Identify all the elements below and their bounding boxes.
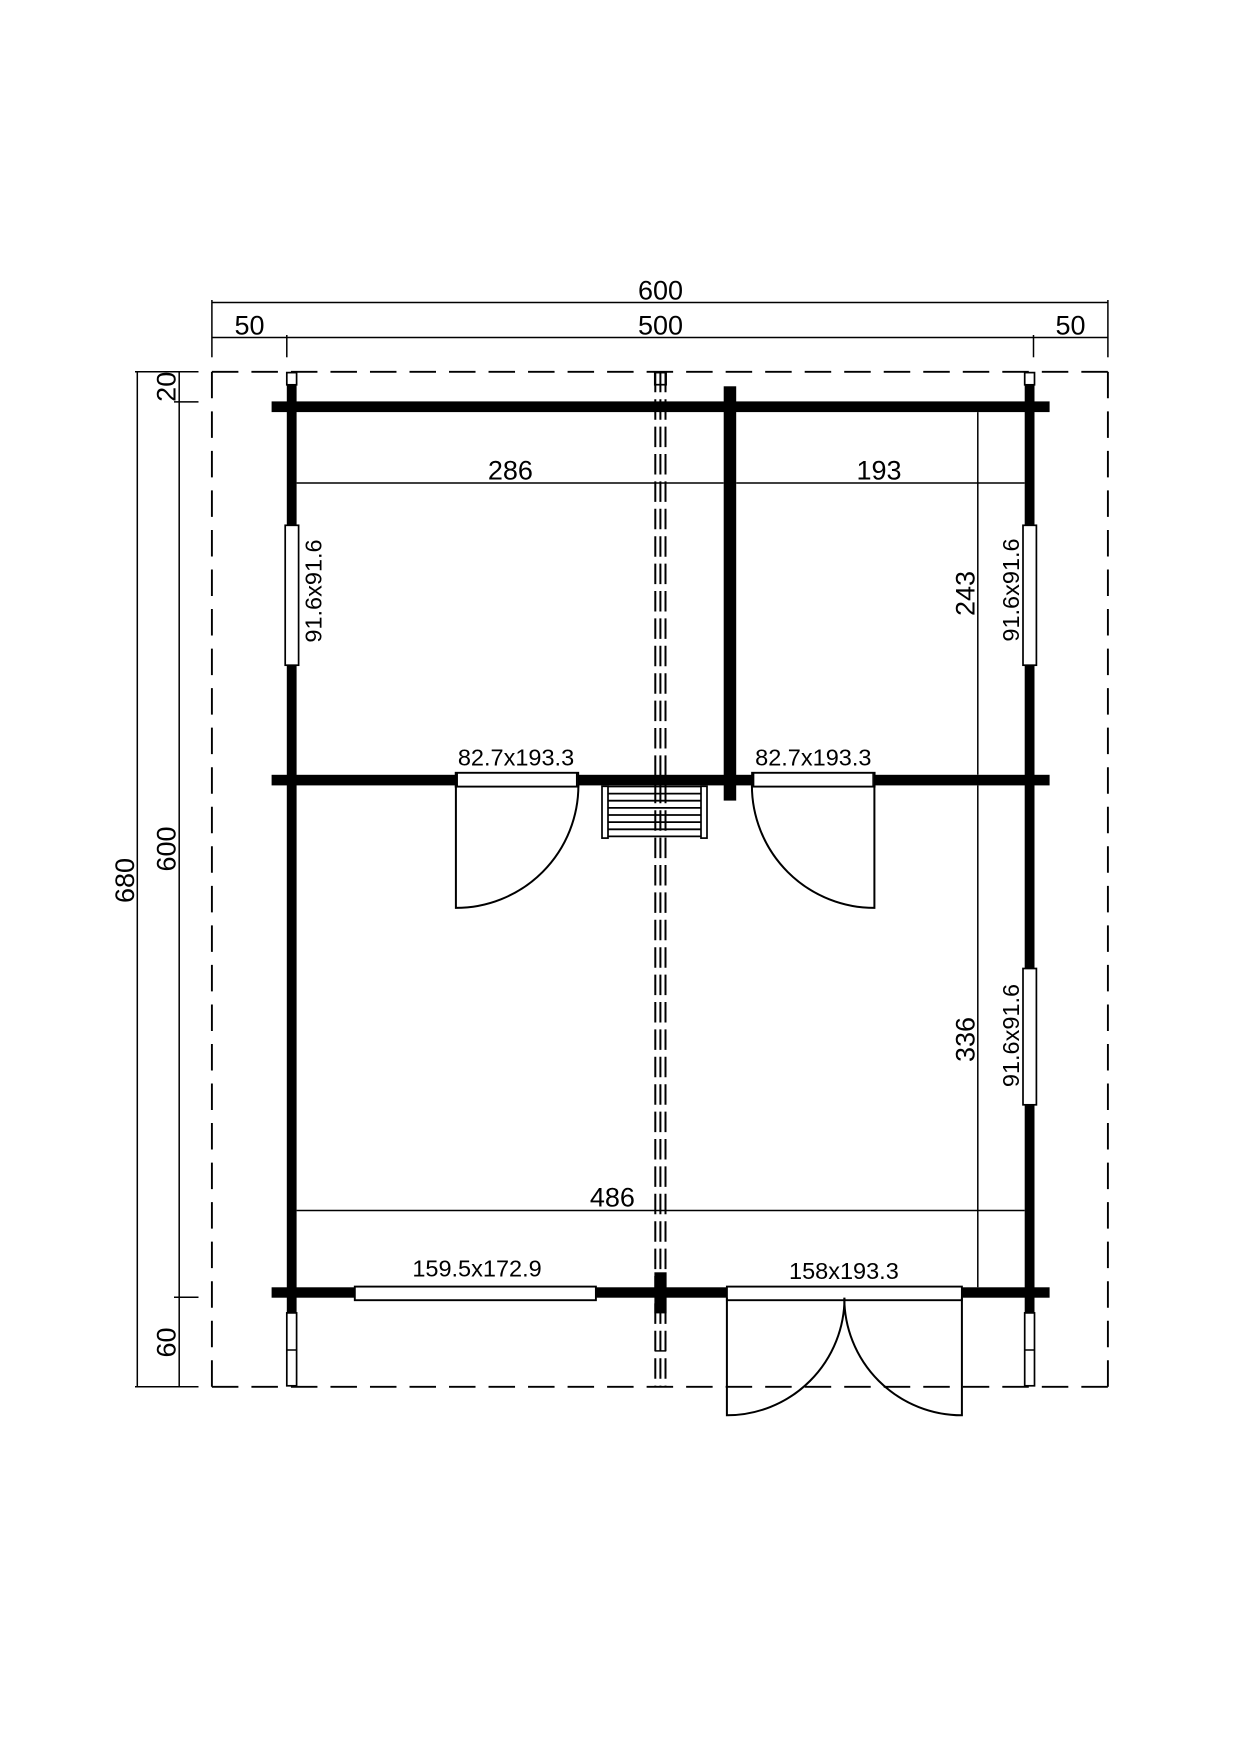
svg-text:500: 500	[638, 311, 683, 341]
svg-text:600: 600	[152, 826, 182, 871]
svg-text:286: 286	[488, 455, 533, 485]
svg-text:243: 243	[951, 571, 981, 616]
svg-text:91.6x91.6: 91.6x91.6	[301, 539, 327, 642]
svg-text:680: 680	[110, 858, 140, 903]
svg-text:486: 486	[590, 1183, 635, 1213]
svg-text:91.6x91.6: 91.6x91.6	[998, 538, 1024, 641]
svg-text:600: 600	[638, 276, 683, 306]
svg-text:82.7x193.3: 82.7x193.3	[458, 745, 574, 771]
svg-text:20: 20	[152, 372, 182, 402]
svg-text:159.5x172.9: 159.5x172.9	[412, 1256, 541, 1282]
svg-text:336: 336	[951, 1017, 981, 1062]
svg-text:50: 50	[234, 311, 264, 341]
svg-text:91.6x91.6: 91.6x91.6	[998, 984, 1024, 1087]
svg-text:50: 50	[1055, 311, 1085, 341]
svg-text:193: 193	[856, 455, 901, 485]
svg-text:82.7x193.3: 82.7x193.3	[755, 745, 871, 771]
svg-text:60: 60	[152, 1327, 182, 1357]
svg-text:158x193.3: 158x193.3	[789, 1258, 899, 1284]
